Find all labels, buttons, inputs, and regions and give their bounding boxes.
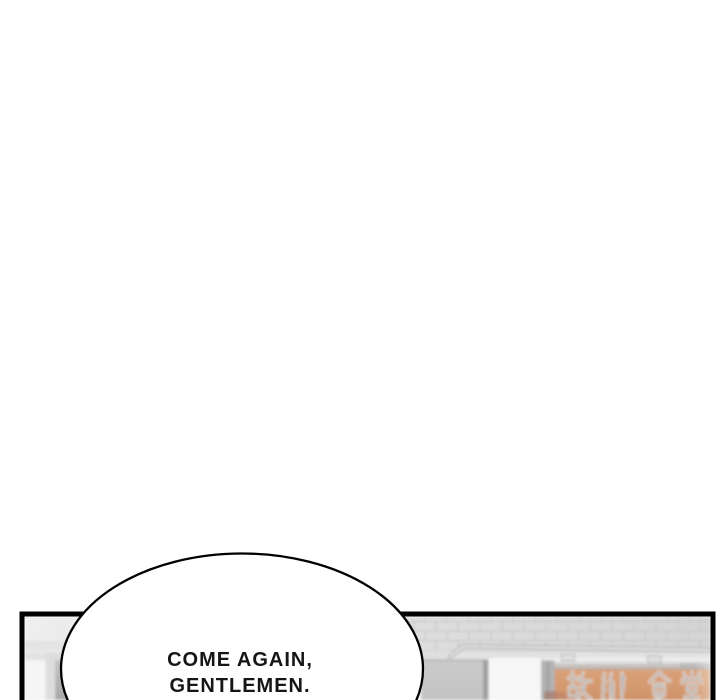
svg-text:COME AGAIN,: COME AGAIN, xyxy=(167,649,313,671)
svg-text:GENTLEMEN.: GENTLEMEN. xyxy=(169,675,310,697)
